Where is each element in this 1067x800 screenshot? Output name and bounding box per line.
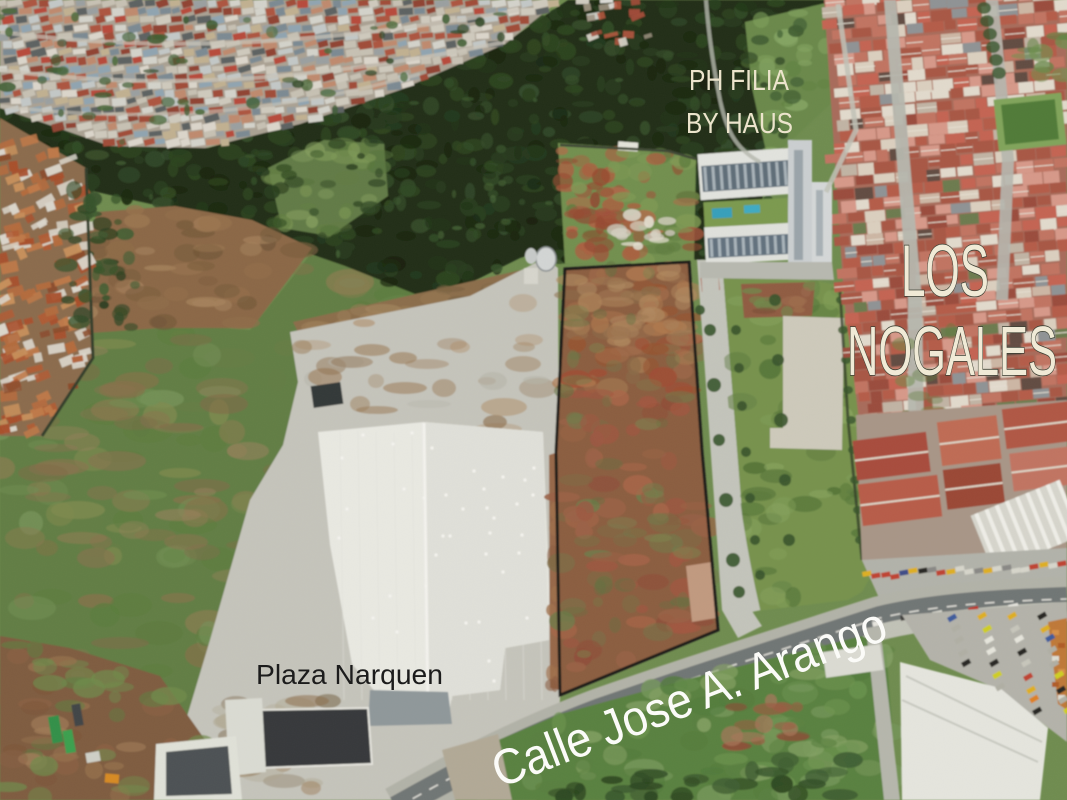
svg-text:PH FILIA: PH FILIA	[689, 65, 790, 97]
svg-text:LOS: LOS	[901, 231, 989, 312]
svg-text:NOGALES: NOGALES	[847, 312, 1057, 390]
svg-text:BY HAUS: BY HAUS	[686, 108, 793, 140]
svg-text:Plaza Narquen: Plaza Narquen	[256, 659, 443, 690]
